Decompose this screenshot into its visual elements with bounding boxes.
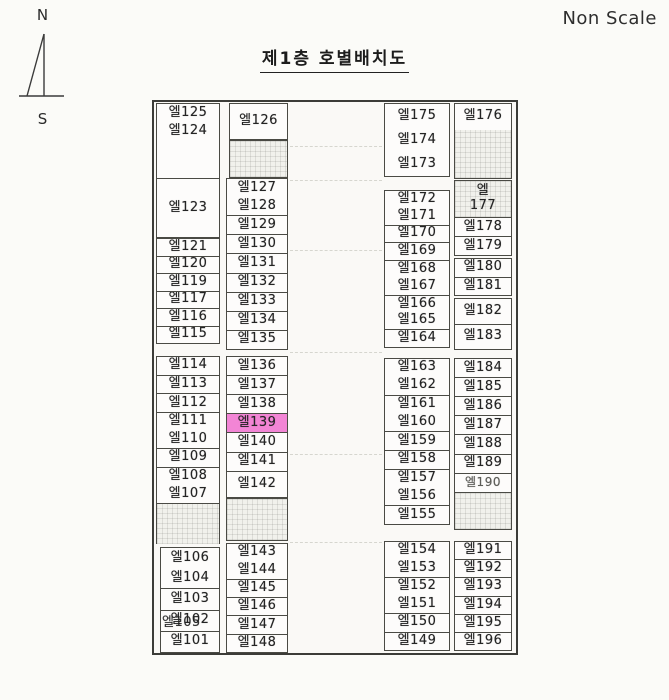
unit-label: 엘125 (169, 106, 208, 121)
unit-label: 엘146 (238, 599, 277, 614)
unit-label: 엘170 (398, 226, 437, 241)
unit-cell: 엘141 (227, 452, 287, 471)
unit-label: 엘129 (238, 218, 277, 233)
unit-cell: 엘170 (385, 225, 449, 243)
unit-cell: 엘160 (385, 413, 449, 431)
unit-label: 엘147 (238, 618, 277, 633)
unit-block-left-top: 엘125엘124엘123 (156, 103, 220, 238)
corridor-line (290, 250, 382, 251)
unit-cell: 엘173 (385, 152, 449, 176)
unit-label: 엘155 (398, 508, 437, 523)
unit-label: 엘168 (398, 262, 437, 277)
unit-label: 엘162 (398, 378, 437, 393)
unit-cell: 엘117 (157, 291, 219, 309)
floor-plan: 엘125엘124엘123 엘121엘120엘119엘117엘116엘115 엘1… (152, 100, 518, 655)
unit-label: 엘138 (238, 397, 277, 412)
scale-note: Non Scale (562, 8, 657, 29)
service-area-cell (455, 130, 511, 178)
unit-cell: 엘168 (385, 260, 449, 278)
unit-cell: 엘151 (385, 596, 449, 614)
unit-label: 엘150 (398, 615, 437, 630)
compass-south-label: S (8, 110, 78, 128)
unit-cell: 엘130 (227, 234, 287, 253)
unit-label: 엘180 (464, 260, 503, 275)
unit-label: 엘112 (169, 396, 208, 411)
unit-label: 엘145 (238, 581, 277, 596)
unit-cell: 엘196 (455, 632, 511, 650)
corridor-line (290, 146, 382, 147)
unit-label: 엘144 (238, 563, 277, 578)
unit-cell: 엘134 (227, 311, 287, 330)
unit-label: 엘141 (238, 454, 277, 469)
unit-cell: 엘188 (455, 434, 511, 453)
unit-label: 엘187 (464, 418, 503, 433)
unit-cell: 엘187 (455, 415, 511, 434)
unit-label: 엘116 (169, 310, 208, 325)
service-block-left (156, 504, 220, 544)
unit-cell: 엘 177 (455, 181, 511, 217)
unit-block-innerleft-upper: 엘127엘128엘129엘130엘131엘132엘133엘134엘135 (226, 178, 288, 350)
unit-cell: 엘192 (455, 559, 511, 577)
corridor-line (290, 542, 382, 543)
unit-label: 엘196 (464, 634, 503, 649)
unit-cell: 엘163 (385, 359, 449, 377)
unit-label: 엘135 (238, 332, 277, 347)
unit-cell: 엘136 (227, 357, 287, 375)
unit-label: 엘156 (398, 489, 437, 504)
unit-cell: 엘103 (161, 588, 219, 609)
unit-cell: 엘146 (227, 597, 287, 615)
unit-cell: 엘190 (455, 473, 511, 492)
unit-label: 엘120 (169, 257, 208, 272)
unit-cell: 엘138 (227, 394, 287, 413)
unit-cell: 엘157 (385, 469, 449, 488)
unit-label: 엘166 (398, 297, 437, 312)
unit-label: 엘143 (238, 545, 277, 560)
unit-cell: 엘142 (227, 471, 287, 497)
unit-label: 엘127 (238, 181, 277, 196)
unit-block-innerright-middle: 엘163엘162엘161엘160엘159엘158엘157엘156엘155 (384, 358, 450, 525)
unit-label: 엘160 (398, 415, 437, 430)
unit-cell: 엘156 (385, 487, 449, 505)
unit-label: 엘104 (171, 571, 210, 586)
unit-cell: 엘121 (157, 239, 219, 256)
unit-cell: 엘127 (227, 179, 287, 197)
unit-cell: 엘189 (455, 454, 511, 473)
corridor-line (290, 180, 382, 181)
overlapping-unit-label: 엘105 (162, 611, 201, 630)
unit-cell: 엘152 (385, 577, 449, 596)
service-area-cell (157, 141, 219, 178)
unit-cell: 엘113 (157, 375, 219, 394)
unit-label: 엘152 (398, 579, 437, 594)
unit-cell: 엘133 (227, 292, 287, 311)
unit-label: 엘194 (464, 598, 503, 613)
unit-label: 엘173 (398, 157, 437, 172)
unit-block-right-mid2: 엘182엘183 (454, 298, 512, 350)
unit-cell: 엘153 (385, 560, 449, 578)
unit-label: 엘134 (238, 313, 277, 328)
unit-cell: 엘137 (227, 375, 287, 394)
unit-cell: 엘164 (385, 329, 449, 347)
unit-block-innerleft-middle: 엘136엘137엘138엘139엘140엘141엘142 (226, 356, 288, 498)
unit-block-right-mid1: 엘180엘181 (454, 258, 512, 296)
unit-cell: 엘112 (157, 393, 219, 412)
unit-label: 엘153 (398, 561, 437, 576)
unit-label: 엘171 (398, 209, 437, 224)
unit-label: 엘128 (238, 199, 277, 214)
unit-block-right-top: 엘176 (454, 103, 512, 179)
unit-label: 엘164 (398, 331, 437, 346)
service-block-innerleft-top (229, 140, 288, 178)
unit-label: 엘165 (398, 313, 437, 328)
page-title: 제1층 호별배치도 (260, 44, 409, 73)
unit-block-right-upper: 엘 177엘178엘179 (454, 180, 512, 256)
unit-label: 엘103 (171, 592, 210, 607)
unit-label: 엘101 (171, 634, 210, 649)
unit-cell: 엘195 (455, 614, 511, 632)
unit-label: 엘107 (169, 487, 208, 502)
unit-label: 엘183 (464, 329, 503, 344)
unit-cell: 엘131 (227, 253, 287, 272)
unit-label: 엘193 (464, 579, 503, 594)
unit-label: 엘175 (398, 109, 437, 124)
unit-cell: 엘126 (230, 104, 287, 139)
unit-cell: 엘116 (157, 308, 219, 326)
unit-label: 엘190 (465, 476, 501, 490)
unit-cell: 엘154 (385, 542, 449, 560)
unit-label: 엘154 (398, 543, 437, 558)
unit-cell: 엘119 (157, 273, 219, 291)
unit-label: 엘184 (464, 361, 503, 376)
unit-block-left-upper: 엘121엘120엘119엘117엘116엘115 (156, 238, 220, 344)
unit-label: 엘108 (169, 469, 208, 484)
unit-cell: 엘178 (455, 217, 511, 236)
unit-label: 엘178 (464, 220, 503, 235)
unit-label: 엘132 (238, 275, 277, 290)
unit-cell: 엘107 (157, 485, 219, 503)
unit-cell: 엘159 (385, 431, 449, 450)
unit-block-left-bottom: 엘106엘104엘103엘102엘105엘101 (160, 547, 220, 653)
service-block-innerleft-lower (226, 498, 288, 541)
unit-label: 엘185 (464, 380, 503, 395)
unit-cell: 엘172 (385, 191, 449, 208)
unit-cell: 엘181 (455, 277, 511, 296)
scanned-floor-plan-page: N S Non Scale 제1층 호별배치도 엘125엘124엘123 엘12… (0, 0, 669, 700)
unit-label: 엘161 (398, 397, 437, 412)
unit-cell: 엘129 (227, 215, 287, 234)
unit-cell: 엘176 (455, 104, 511, 130)
unit-cell: 엘166 (385, 295, 449, 313)
unit-label: 엘157 (398, 471, 437, 486)
unit-label: 엘163 (398, 360, 437, 375)
unit-cell: 엘101 (161, 631, 219, 652)
unit-cell: 엘158 (385, 450, 449, 469)
unit-cell: 엘120 (157, 256, 219, 274)
unit-label: 엘181 (464, 279, 503, 294)
unit-cell: 엘144 (227, 561, 287, 578)
unit-label: 엘117 (169, 292, 208, 307)
unit-cell: 엘102엘105 (161, 610, 219, 631)
unit-cell: 엘114 (157, 357, 219, 375)
unit-cell: 엘135 (227, 330, 287, 349)
unit-label: 엘106 (171, 551, 210, 566)
corridor-line (290, 352, 382, 353)
unit-cell: 엘145 (227, 579, 287, 597)
unit-label: 엘186 (464, 399, 503, 414)
unit-cell: 엘169 (385, 242, 449, 260)
page-title-wrap: 제1층 호별배치도 (0, 44, 669, 73)
unit-label: 엘192 (464, 561, 503, 576)
unit-label: 엘110 (169, 432, 208, 447)
unit-label: 엘124 (169, 124, 208, 139)
unit-cell: 엘124 (157, 123, 219, 142)
unit-label: 엘130 (238, 237, 277, 252)
unit-label: 엘139 (238, 416, 277, 431)
unit-cell: 엘161 (385, 395, 449, 414)
unit-cell: 엘182 (455, 299, 511, 324)
unit-label: 엘111 (169, 414, 208, 429)
unit-cell: 엘108 (157, 467, 219, 486)
unit-cell: 엘115 (157, 326, 219, 344)
unit-cell: 엘185 (455, 377, 511, 396)
unit-cell: 엘174 (385, 128, 449, 152)
unit-cell: 엘167 (385, 278, 449, 295)
unit-cell: 엘183 (455, 324, 511, 350)
unit-cell: 엘155 (385, 505, 449, 524)
unit-cell: 엘171 (385, 208, 449, 225)
unit-label: 엘113 (169, 377, 208, 392)
unit-label: 엘 177 (470, 184, 496, 214)
unit-label: 엘140 (238, 435, 277, 450)
unit-block-left-middle: 엘114엘113엘112엘111엘110엘109엘108엘107 (156, 356, 220, 504)
unit-label: 엘191 (464, 543, 503, 558)
unit-label: 엘195 (464, 616, 503, 631)
unit-cell: 엘162 (385, 377, 449, 395)
unit-cell: 엘111 (157, 412, 219, 431)
unit-cell: 엘110 (157, 431, 219, 449)
unit-cell: 엘106 (161, 548, 219, 568)
unit-label: 엘133 (238, 294, 277, 309)
unit-label: 엘179 (464, 239, 503, 254)
unit-label: 엘123 (169, 201, 208, 216)
unit-cell: 엘149 (385, 632, 449, 651)
service-area-cell (157, 504, 219, 544)
unit-cell: 엘104 (161, 568, 219, 588)
unit-label: 엘119 (169, 275, 208, 290)
unit-cell: 엘123 (157, 178, 219, 237)
unit-label: 엘174 (398, 133, 437, 148)
unit-label: 엘121 (169, 240, 208, 255)
unit-label: 엘115 (169, 327, 208, 342)
unit-label: 엘182 (464, 304, 503, 319)
unit-cell: 엘186 (455, 396, 511, 415)
unit-block-innerright-top: 엘175엘174엘173 (384, 103, 450, 177)
unit-block-innerright-upper: 엘172엘171엘170엘169엘168엘167엘166엘165엘164 (384, 190, 450, 348)
unit-cell: 엘193 (455, 577, 511, 595)
service-area-cell (230, 141, 287, 177)
unit-block-innerleft-bottom: 엘143엘144엘145엘146엘147엘148 (226, 543, 288, 653)
unit-label: 엘188 (464, 437, 503, 452)
unit-cell: 엘140 (227, 432, 287, 451)
service-area-cell (455, 492, 511, 529)
unit-block-right-middle: 엘184엘185엘186엘187엘188엘189엘190 (454, 358, 512, 530)
unit-label: 엘189 (464, 456, 503, 471)
highlighted-unit-cell: 엘139 (227, 413, 287, 432)
unit-cell: 엘143 (227, 544, 287, 561)
unit-cell: 엘165 (385, 312, 449, 329)
unit-label: 엘167 (398, 279, 437, 294)
unit-label: 엘136 (238, 359, 277, 374)
unit-label: 엘149 (398, 634, 437, 649)
unit-label: 엘169 (398, 244, 437, 259)
unit-cell: 엘125 (157, 104, 219, 123)
service-area-cell (227, 499, 287, 540)
unit-cell: 엘179 (455, 236, 511, 255)
unit-block-innerright-bottom: 엘154엘153엘152엘151엘150엘149 (384, 541, 450, 651)
unit-label: 엘151 (398, 597, 437, 612)
unit-label: 엘109 (169, 450, 208, 465)
unit-label: 엘148 (238, 636, 277, 651)
unit-block-innerleft-top: 엘126 (229, 103, 288, 140)
unit-cell: 엘180 (455, 259, 511, 277)
unit-cell: 엘109 (157, 448, 219, 467)
unit-cell: 엘148 (227, 634, 287, 652)
unit-label: 엘159 (398, 434, 437, 449)
unit-label: 엘137 (238, 378, 277, 393)
unit-cell: 엘184 (455, 359, 511, 377)
unit-cell: 엘191 (455, 542, 511, 559)
unit-label: 엘131 (238, 256, 277, 271)
unit-label: 엘114 (169, 358, 208, 373)
unit-cell: 엘175 (385, 104, 449, 128)
unit-label: 엘142 (238, 477, 277, 492)
corridor-line (290, 454, 382, 455)
unit-block-right-bottom: 엘191엘192엘193엘194엘195엘196 (454, 541, 512, 651)
unit-cell: 엘132 (227, 273, 287, 292)
unit-cell: 엘147 (227, 615, 287, 633)
unit-cell: 엘150 (385, 613, 449, 632)
unit-label: 엘176 (464, 109, 503, 124)
unit-cell: 엘194 (455, 596, 511, 614)
unit-label: 엘158 (398, 452, 437, 467)
unit-label: 엘172 (398, 192, 437, 207)
unit-cell: 엘128 (227, 197, 287, 215)
unit-label: 엘126 (239, 114, 278, 129)
